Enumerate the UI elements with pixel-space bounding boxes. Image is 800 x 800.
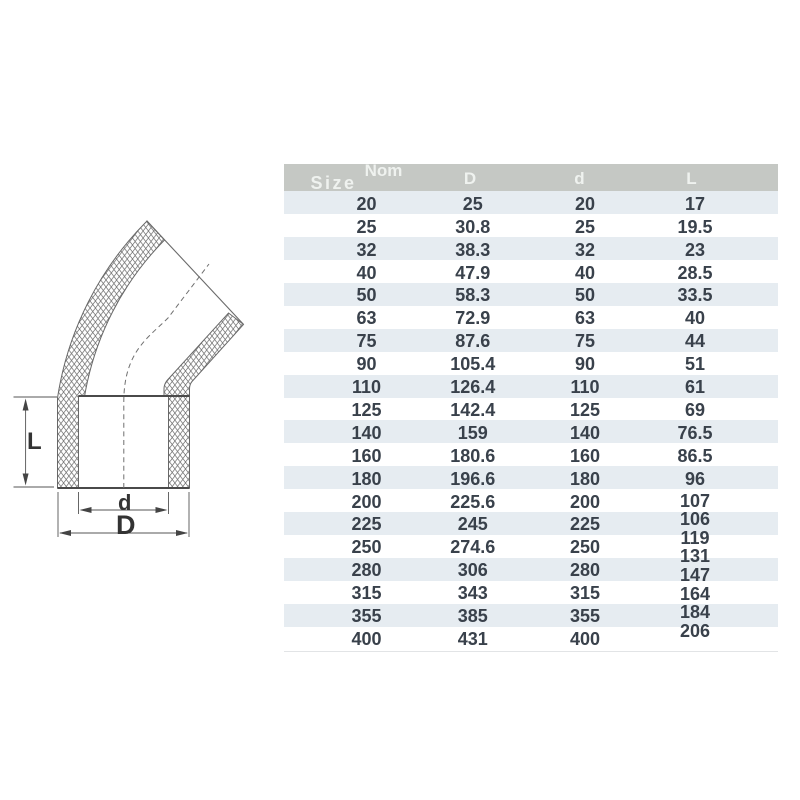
svg-text:D: D: [116, 510, 136, 540]
svg-text:L: L: [27, 428, 42, 455]
